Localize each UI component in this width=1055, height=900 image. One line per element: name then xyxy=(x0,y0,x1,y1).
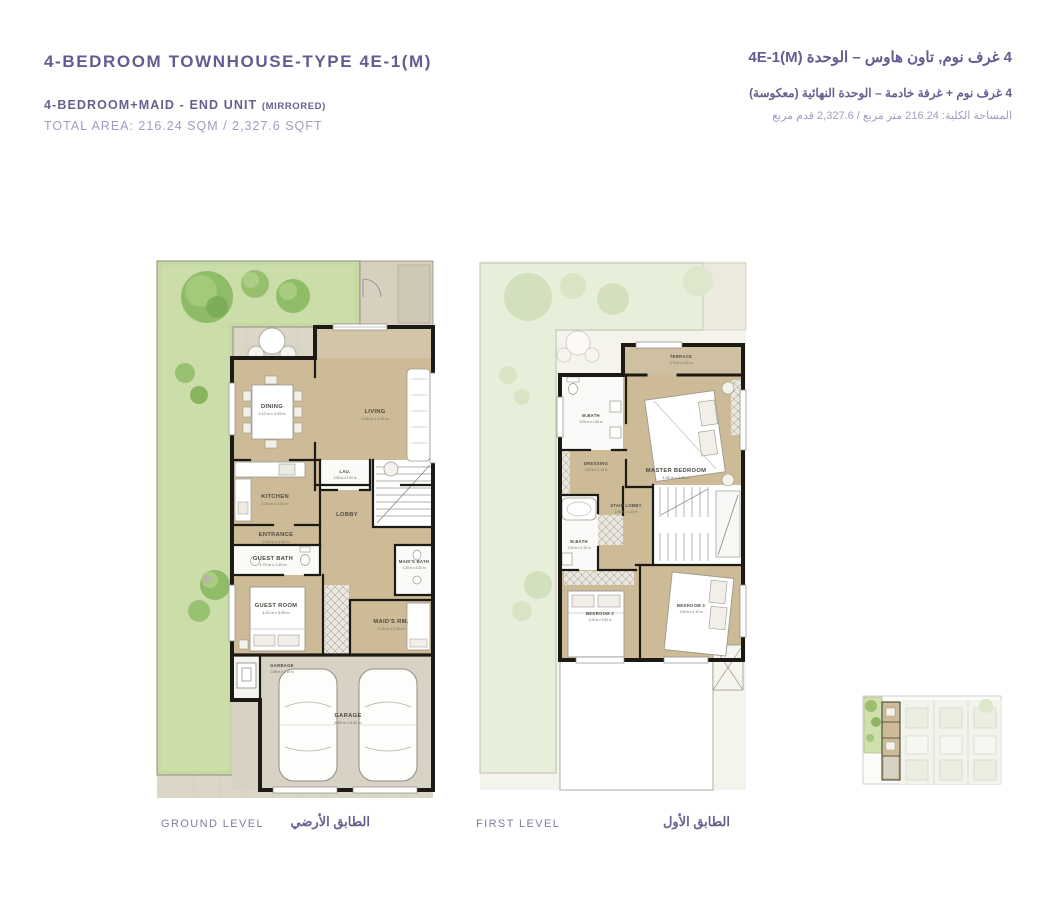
room-label-guest-room: GUEST ROOM xyxy=(255,603,298,609)
room-dims-dressing: 2.00 m x 1.15 m xyxy=(585,468,608,472)
ground-floor-plan: DINING 3.10 m x 2.05 m LIVING 3.55 m x 4… xyxy=(155,255,435,800)
room-dims-living: 3.55 m x 4.25 m xyxy=(361,417,388,421)
ground-annex xyxy=(360,261,433,327)
room-dims-stair-lobby: 2.55 m x 1.20 m xyxy=(615,510,638,514)
room-label-stair-lobby: STAIR LOBBY xyxy=(610,503,641,508)
room-dims-terrace: 3.70 m x 1.50 m xyxy=(670,361,693,365)
room-label-lobby: LOBBY xyxy=(336,512,358,518)
room-label-master-bedroom: MASTER BEDROOM xyxy=(646,468,707,474)
maid-bed-icon xyxy=(407,603,430,650)
ground-level-label-ar: الطابق الأرضي xyxy=(280,814,370,830)
room-dims-garbage: 0.65 m x 1.10 m xyxy=(271,670,294,674)
unit-subtitle-note: (MIRRORED) xyxy=(262,101,326,112)
room-dims-mbath-2: 2.00 m x 2.15 m xyxy=(568,546,591,550)
room-dims-maids-bath: 1.20 m x 2.00 m xyxy=(403,566,426,570)
page-title-arabic: 4 غرف نوم, تاون هاوس – الوحدة 4E-1(M) xyxy=(682,48,1012,66)
unit-subtitle: 4-BEDROOM+MAID - END UNIT (MIRRORED) xyxy=(44,98,474,112)
room-label-bedroom-2: BEDROOM 2 xyxy=(586,611,614,616)
room-label-dressing: DRESSING xyxy=(584,461,608,466)
page-title: 4-BEDROOM TOWNHOUSE-TYPE 4E-1(M) xyxy=(44,52,474,72)
room-label-kitchen: KITCHEN xyxy=(261,494,289,500)
room-dims-garage: 5.55 m x 5.80 m xyxy=(334,721,361,725)
room-label-mbath-1: M.BATH xyxy=(582,413,600,418)
room-dims-master-bedroom: 4.35 m x 3.65 m xyxy=(662,476,689,480)
room-dims-guest-room: 4.20 m x 3.05 m xyxy=(262,611,289,615)
room-dims-guest-bath: 2.70 m x 1.40 m xyxy=(259,563,286,567)
room-label-maids-rm: MAID'S RM. xyxy=(373,619,408,625)
first-floor-plan-drawing: TERRACE 3.70 m x 1.50 m M.BATH 3.20 m x … xyxy=(478,255,748,795)
room-label-maids-bath: MAID'S BATH xyxy=(399,559,429,564)
unit-subtitle-arabic: 4 غرف نوم + غرفة خادمة – الوحدة النهائية… xyxy=(682,86,1012,100)
room-label-living: LIVING xyxy=(364,409,385,415)
site-key-plan-drawing xyxy=(862,692,1002,792)
room-label-laundry: LAU. xyxy=(340,469,351,474)
room-label-guest-bath: GUEST BATH xyxy=(253,556,293,562)
bathtub-icon xyxy=(562,498,596,520)
room-dims-maids-rm: 2.05 m x 2.00 m xyxy=(377,627,404,631)
room-dims-dining: 3.10 m x 2.05 m xyxy=(258,412,285,416)
ground-floor-plan-drawing: DINING 3.10 m x 2.05 m LIVING 3.55 m x 4… xyxy=(155,255,435,800)
first-level-label-en: FIRST LEVEL xyxy=(476,818,560,830)
room-label-garbage: GARBAGE xyxy=(270,663,294,668)
faded-tree-icon xyxy=(979,699,993,713)
room-label-mbath-2: M.BATH xyxy=(570,539,588,544)
room-dims-mbath-1: 3.20 m x 1.60 m xyxy=(580,420,603,424)
ground-level-label-en: GROUND LEVEL xyxy=(161,818,264,830)
site-key-plan xyxy=(862,692,1002,792)
first-floor-plan: TERRACE 3.70 m x 1.50 m M.BATH 3.20 m x … xyxy=(478,255,748,795)
room-dims-laundry: 2.05 m x 1.00 m xyxy=(334,476,357,480)
room-dims-bedroom-3: 3.55 m x 4.10 m xyxy=(680,610,703,614)
room-dims-kitchen: 2.55 m x 3.00 m xyxy=(261,502,288,506)
header-right: 4 غرف نوم, تاون هاوس – الوحدة 4E-1(M) 4 … xyxy=(682,48,1012,122)
room-label-entrance: ENTRANCE xyxy=(259,532,294,538)
room-label-terrace: TERRACE xyxy=(670,354,692,359)
room-dims-entrance: 2.05 m x 1.10 m xyxy=(262,540,289,544)
total-area-text: TOTAL AREA: 216.24 SQM / 2,327.6 SQFT xyxy=(44,119,474,133)
room-label-garage: GARAGE xyxy=(334,713,361,719)
faded-units xyxy=(906,700,996,784)
garbage-closet-icon xyxy=(237,663,256,688)
total-area-arabic: المساحة الكلية: 216.24 متر مربع / 2,327.… xyxy=(682,109,1012,122)
unit-subtitle-text: 4-BEDROOM+MAID - END UNIT xyxy=(44,98,257,112)
room-dims-bedroom-2: 3.20 m x 3.60 m xyxy=(589,618,612,622)
room-label-dining: DINING xyxy=(261,404,283,410)
floorplan-sheet: 4-BEDROOM TOWNHOUSE-TYPE 4E-1(M) 4-BEDRO… xyxy=(0,0,1055,900)
header-left: 4-BEDROOM TOWNHOUSE-TYPE 4E-1(M) 4-BEDRO… xyxy=(44,52,474,133)
first-level-label-ar: الطابق الأول xyxy=(638,814,730,830)
room-label-bedroom-3: BEDROOM 3 xyxy=(677,603,705,608)
